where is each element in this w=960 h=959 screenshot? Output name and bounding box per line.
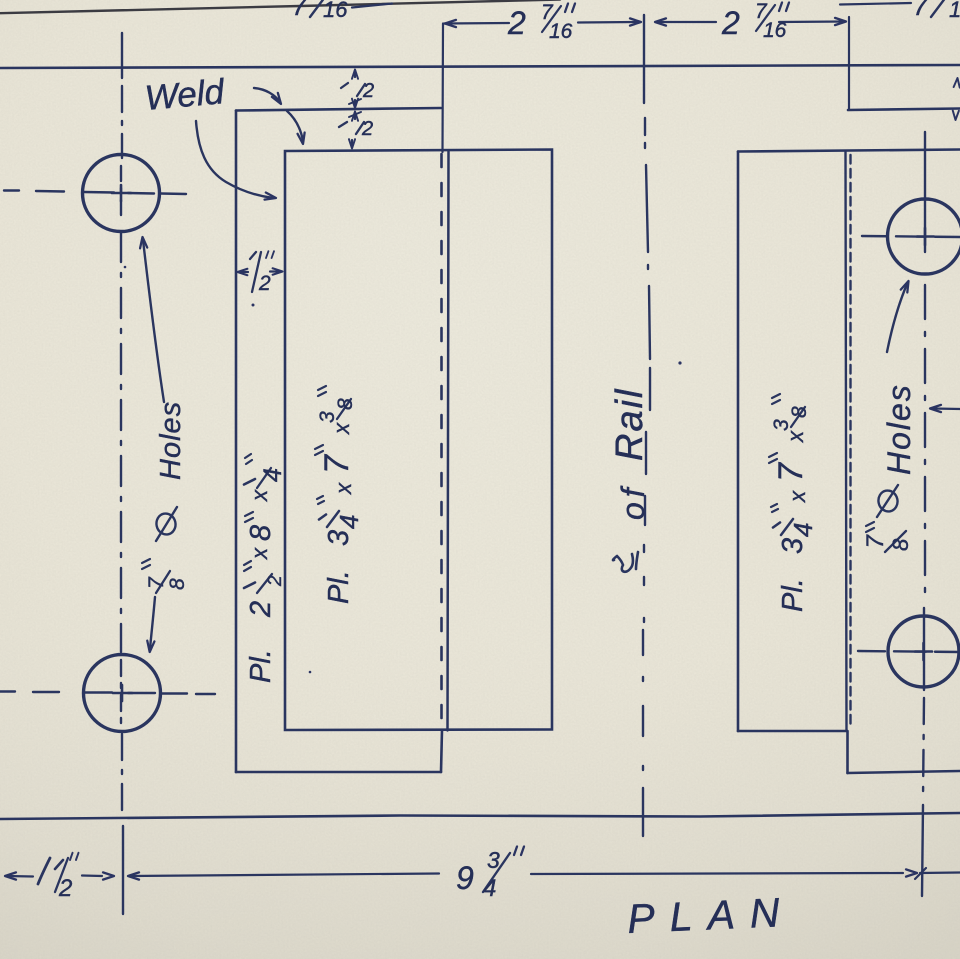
svg-text:x: x	[331, 482, 356, 495]
svg-text:8: 8	[888, 538, 913, 551]
svg-text:9: 9	[456, 860, 474, 896]
svg-text:2: 2	[258, 272, 271, 295]
svg-text:16: 16	[323, 0, 348, 22]
svg-text:8: 8	[245, 525, 277, 541]
svg-text:Pl.: Pl.	[245, 649, 277, 683]
svg-text:Rail: Rail	[609, 388, 651, 461]
svg-text:3: 3	[323, 530, 355, 546]
svg-text:7: 7	[772, 462, 810, 482]
svg-text:4: 4	[259, 468, 287, 482]
svg-text:Holes: Holes	[881, 383, 917, 475]
svg-text:2: 2	[265, 575, 286, 587]
svg-text:7: 7	[318, 454, 356, 474]
svg-text:7: 7	[862, 534, 889, 549]
svg-text:Holes: Holes	[155, 401, 187, 480]
svg-text:16: 16	[949, 0, 960, 22]
svg-text:7: 7	[913, 0, 929, 21]
svg-text:2: 2	[362, 80, 374, 102]
svg-text:16: 16	[763, 19, 787, 42]
svg-text:2: 2	[58, 875, 72, 902]
svg-text:PLAN: PLAN	[626, 889, 795, 942]
svg-text:3: 3	[777, 538, 809, 554]
svg-text:2: 2	[721, 5, 740, 41]
svg-text:x: x	[785, 490, 810, 503]
svg-text:Pl.: Pl.	[323, 570, 355, 604]
svg-text:8: 8	[334, 398, 357, 410]
svg-text:4: 4	[788, 523, 818, 537]
svg-text:4: 4	[483, 875, 496, 902]
svg-text:x: x	[247, 489, 272, 502]
svg-text:4: 4	[334, 515, 364, 529]
svg-text:8: 8	[788, 406, 811, 418]
svg-text:7: 7	[292, 0, 308, 21]
svg-text:2: 2	[361, 118, 373, 140]
svg-text:x: x	[247, 547, 272, 560]
svg-text:3: 3	[770, 419, 793, 431]
svg-text:Weld: Weld	[143, 72, 227, 118]
svg-text:2: 2	[245, 601, 277, 618]
svg-text:2: 2	[507, 5, 526, 41]
svg-text:of: of	[615, 483, 651, 520]
svg-text:Pl.: Pl.	[777, 578, 809, 612]
svg-text:3: 3	[316, 411, 339, 423]
svg-text:16: 16	[549, 20, 573, 43]
svg-text:8: 8	[166, 578, 189, 590]
